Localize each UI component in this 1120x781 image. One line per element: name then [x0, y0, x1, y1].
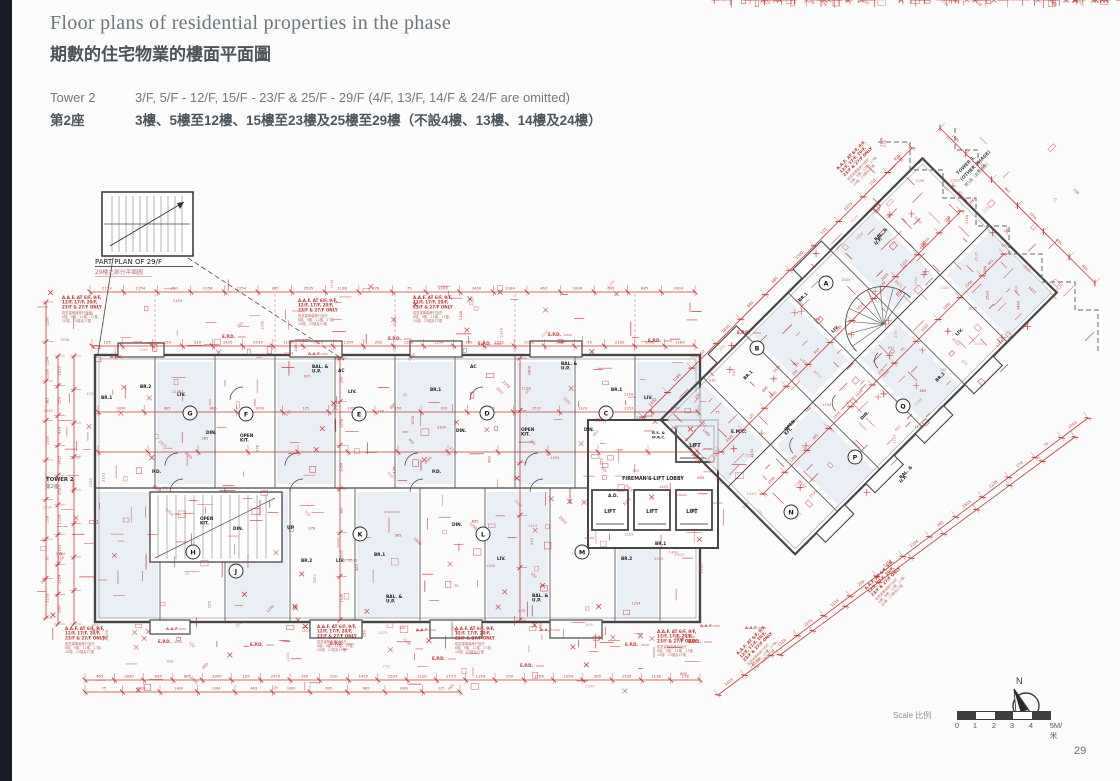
svg-text:75: 75	[715, 411, 720, 415]
svg-text:BR.2: BR.2	[140, 384, 151, 390]
svg-text:AC: AC	[338, 368, 344, 374]
svg-text:150: 150	[363, 629, 367, 637]
svg-text:150: 150	[164, 339, 172, 344]
svg-text:125: 125	[208, 601, 212, 608]
svg-text:278: 278	[46, 516, 50, 522]
svg-text:278: 278	[377, 409, 385, 413]
svg-text:1138: 1138	[988, 479, 999, 489]
svg-text:1425: 1425	[747, 492, 756, 496]
svg-text:AC: AC	[470, 364, 476, 370]
svg-text:695: 695	[785, 0, 792, 1]
svg-text:E.P.D.: E.P.D.	[250, 642, 264, 647]
svg-text:885: 885	[210, 406, 217, 410]
svg-text:125: 125	[103, 339, 111, 344]
svg-text:LIFT: LIFT	[689, 443, 701, 449]
svg-text:1154: 1154	[829, 597, 840, 607]
svg-text:1129: 1129	[521, 386, 531, 390]
svg-text:1254: 1254	[340, 462, 344, 472]
svg-text:695: 695	[586, 623, 593, 627]
svg-text:1830: 1830	[968, 307, 978, 311]
svg-text:A.A.F.: A.A.F.	[745, 625, 758, 630]
svg-text:385: 385	[395, 534, 402, 538]
svg-text:910: 910	[57, 426, 62, 434]
svg-text:278: 278	[308, 527, 316, 531]
svg-text:1129: 1129	[624, 533, 634, 537]
svg-text:2533: 2533	[253, 339, 263, 344]
svg-text:2103: 2103	[1067, 419, 1078, 429]
svg-text:UP: UP	[287, 525, 295, 531]
svg-text:2535: 2535	[494, 339, 504, 344]
svg-text:1258: 1258	[60, 338, 70, 342]
svg-text:125: 125	[438, 686, 444, 690]
svg-text:1400: 1400	[174, 686, 183, 690]
svg-text:1129: 1129	[578, 406, 587, 410]
svg-text:250: 250	[599, 457, 603, 465]
svg-text:695: 695	[155, 673, 163, 678]
svg-text:LIV.: LIV.	[348, 389, 357, 395]
svg-text:23/F & 27/F ONLY: 23/F & 27/F ONLY	[455, 635, 495, 640]
svg-text:BR.1: BR.1	[655, 541, 666, 547]
svg-text:1400: 1400	[472, 285, 482, 290]
scale-bar-graphic	[957, 711, 1051, 720]
svg-text:463: 463	[96, 673, 104, 678]
svg-text:1425: 1425	[358, 673, 368, 678]
svg-text:2535: 2535	[700, 564, 704, 573]
svg-text:463: 463	[487, 456, 491, 463]
scale-bar: Scale 比例 0 1 2 3 4 5M/米	[893, 708, 1068, 732]
svg-text:PART PLAN OF 29/F: PART PLAN OF 29/F	[95, 258, 162, 266]
svg-text:2533: 2533	[388, 673, 398, 678]
svg-text:G: G	[187, 409, 192, 417]
svg-text:1138: 1138	[914, 425, 924, 429]
svg-text:2535: 2535	[622, 673, 632, 678]
svg-text:125: 125	[392, 467, 396, 474]
svg-text:75: 75	[273, 685, 279, 691]
svg-text:1154: 1154	[57, 574, 62, 584]
svg-text:150: 150	[301, 673, 309, 678]
svg-text:2103: 2103	[951, 178, 960, 182]
scale-ticks: 0 1 2 3 4 5M/米	[957, 721, 1057, 731]
svg-text:75: 75	[1042, 441, 1049, 448]
svg-text:1129: 1129	[57, 514, 62, 524]
scale-tick-5: 5M/米	[1050, 721, 1063, 741]
svg-text:2153: 2153	[803, 617, 814, 627]
svg-text:1258: 1258	[404, 339, 414, 344]
svg-text:885: 885	[202, 662, 210, 670]
svg-text:1184: 1184	[675, 339, 685, 344]
svg-text:1254: 1254	[563, 673, 573, 678]
svg-text:250: 250	[375, 339, 383, 344]
svg-text:DIN.: DIN.	[584, 427, 595, 433]
svg-text:885: 885	[363, 686, 369, 690]
svg-text:1258: 1258	[203, 285, 213, 290]
page-number: 29	[1074, 745, 1086, 757]
svg-text:2103: 2103	[101, 473, 105, 482]
scale-tick-0: 0	[955, 721, 959, 730]
svg-text:LIV.: LIV.	[497, 556, 506, 562]
svg-text:H: H	[190, 548, 195, 556]
svg-text:75: 75	[102, 686, 106, 690]
svg-text:1184: 1184	[286, 652, 290, 662]
svg-text:第2座: 第2座	[46, 483, 59, 490]
svg-text:1154: 1154	[136, 285, 146, 290]
svg-text:20樓、23樓及27樓: 20樓、23樓及27樓	[317, 647, 347, 652]
svg-text:2025: 2025	[843, 201, 854, 212]
svg-text:2025: 2025	[57, 365, 62, 375]
svg-text:23/F & 27/F ONLY: 23/F & 27/F ONLY	[317, 633, 357, 638]
svg-text:E.P.D.: E.P.D.	[222, 334, 236, 339]
svg-text:1129: 1129	[283, 339, 293, 344]
svg-text:A.A.F.: A.A.F.	[110, 354, 123, 359]
svg-text:1184: 1184	[505, 285, 515, 290]
svg-text:125: 125	[242, 673, 250, 678]
svg-text:DIN.: DIN.	[452, 522, 463, 528]
svg-text:DIN.: DIN.	[206, 430, 217, 436]
svg-text:E: E	[357, 410, 361, 418]
svg-text:1830: 1830	[287, 686, 296, 690]
svg-text:278: 278	[518, 609, 526, 613]
svg-text:250: 250	[506, 673, 514, 678]
svg-text:1830: 1830	[690, 355, 700, 359]
svg-text:150: 150	[792, 362, 800, 366]
svg-text:910: 910	[194, 339, 202, 344]
svg-text:1154: 1154	[624, 393, 634, 397]
svg-text:A.A.F.: A.A.F.	[416, 627, 429, 632]
svg-text:1258: 1258	[340, 419, 344, 428]
svg-text:2025: 2025	[841, 278, 850, 282]
svg-text:3300: 3300	[212, 673, 222, 678]
svg-text:A.D.: A.D.	[608, 493, 619, 499]
svg-text:1400: 1400	[294, 342, 298, 352]
svg-text:463: 463	[1073, 187, 1081, 195]
svg-text:278: 278	[255, 444, 259, 452]
svg-text:BR.1: BR.1	[430, 387, 441, 393]
svg-text:BR.1: BR.1	[101, 395, 112, 401]
svg-text:1425: 1425	[301, 629, 310, 633]
svg-text:278: 278	[894, 330, 898, 338]
scale-tick-1: 1	[973, 721, 977, 730]
svg-text:385: 385	[340, 507, 344, 514]
svg-text:463: 463	[251, 686, 257, 690]
svg-text:1184: 1184	[212, 686, 221, 690]
svg-text:910: 910	[330, 673, 338, 678]
svg-text:1129: 1129	[500, 327, 504, 337]
svg-text:1138: 1138	[524, 339, 534, 344]
svg-text:2153: 2153	[71, 456, 80, 460]
svg-text:1830: 1830	[124, 673, 134, 678]
svg-text:278: 278	[383, 665, 391, 669]
svg-text:2535: 2535	[43, 505, 52, 509]
svg-text:2535: 2535	[1055, 283, 1064, 292]
svg-text:385: 385	[465, 339, 473, 344]
svg-text:23/F & 27/F ONLY: 23/F & 27/F ONLY	[413, 304, 453, 309]
svg-text:KIT.: KIT.	[200, 520, 209, 526]
svg-text:E.P.D.: E.P.D.	[158, 639, 172, 644]
floor-plan-drawing: PART PLAN OF 29/F29樓之部分平面圖TOWER 1(OTHER …	[0, 0, 1120, 781]
svg-text:2535: 2535	[304, 285, 314, 290]
svg-text:1138: 1138	[45, 368, 49, 378]
svg-text:B: B	[755, 344, 760, 352]
svg-text:1184: 1184	[965, 214, 969, 224]
svg-text:695: 695	[680, 672, 687, 676]
svg-text:910: 910	[530, 537, 534, 545]
svg-text:20樓、23樓及27樓: 20樓、23樓及27樓	[657, 652, 687, 657]
svg-text:150: 150	[188, 641, 196, 649]
svg-text:1258: 1258	[915, 179, 925, 183]
svg-text:1830: 1830	[411, 415, 415, 425]
svg-text:385: 385	[559, 341, 566, 345]
svg-text:278: 278	[883, 140, 887, 148]
svg-text:U.P.: U.P.	[561, 365, 570, 371]
svg-text:2533: 2533	[334, 357, 343, 361]
svg-text:1830: 1830	[947, 215, 951, 225]
svg-text:1154: 1154	[89, 478, 93, 488]
svg-text:1425: 1425	[956, 0, 965, 1]
svg-text:1129: 1129	[139, 348, 149, 352]
scale-tick-2: 2	[992, 721, 996, 730]
svg-text:DIN.: DIN.	[456, 428, 467, 434]
scale-tick-3: 3	[1010, 721, 1014, 730]
svg-text:BR.1: BR.1	[611, 387, 622, 393]
svg-text:A: A	[824, 279, 829, 287]
svg-text:385: 385	[46, 398, 50, 404]
svg-text:LIV.: LIV.	[336, 558, 345, 564]
svg-text:1138: 1138	[459, 310, 463, 320]
svg-text:1154: 1154	[343, 339, 353, 344]
svg-text:385: 385	[594, 673, 602, 678]
svg-text:910: 910	[1014, 285, 1018, 293]
svg-text:385: 385	[919, 389, 926, 393]
svg-text:1154: 1154	[476, 673, 486, 678]
svg-text:1254: 1254	[550, 456, 560, 460]
svg-text:278: 278	[372, 285, 380, 290]
svg-text:250: 250	[236, 321, 244, 329]
svg-text:2153: 2153	[173, 299, 182, 303]
svg-text:U.P.: U.P.	[532, 597, 541, 603]
brochure-page: Floor plans of residential properties in…	[0, 0, 1120, 781]
svg-text:250: 250	[170, 285, 178, 290]
svg-text:1425: 1425	[528, 524, 537, 528]
svg-text:1830: 1830	[486, 564, 496, 568]
svg-text:2535: 2535	[975, 252, 979, 261]
svg-text:385: 385	[271, 285, 279, 290]
scale-label: Scale 比例	[893, 710, 931, 721]
svg-text:1254: 1254	[940, 0, 950, 8]
svg-text:1154: 1154	[330, 279, 334, 289]
svg-text:FIREMAN'S LIFT LOBBY: FIREMAN'S LIFT LOBBY	[622, 476, 684, 482]
svg-text:150: 150	[395, 406, 402, 410]
svg-text:2535: 2535	[961, 499, 972, 509]
svg-text:P.D.: P.D.	[432, 469, 442, 475]
svg-text:LIFT: LIFT	[686, 509, 698, 515]
svg-text:885: 885	[808, 0, 816, 6]
svg-text:BR.1: BR.1	[374, 552, 385, 558]
svg-text:1400: 1400	[527, 365, 531, 375]
svg-text:1830: 1830	[573, 285, 583, 290]
svg-text:1258: 1258	[534, 673, 544, 678]
svg-text:20樓、23樓及27樓: 20樓、23樓及27樓	[65, 649, 95, 654]
svg-text:1258: 1258	[46, 317, 50, 326]
svg-text:1830: 1830	[1028, 211, 1037, 220]
svg-text:J: J	[234, 567, 237, 575]
part-plan: PART PLAN OF 29/F29樓之部分平面圖	[95, 192, 344, 360]
svg-text:E.M.C.: E.M.C.	[731, 429, 747, 435]
svg-text:3300: 3300	[585, 684, 595, 688]
svg-text:20樓、23樓及27樓: 20樓、23樓及27樓	[62, 318, 92, 323]
svg-text:125: 125	[982, 206, 990, 214]
svg-text:125: 125	[844, 0, 852, 6]
svg-text:2153: 2153	[446, 673, 456, 678]
svg-text:2103: 2103	[378, 631, 387, 635]
svg-text:1425: 1425	[57, 455, 62, 465]
svg-text:1425: 1425	[659, 485, 668, 489]
svg-text:910: 910	[709, 379, 717, 383]
svg-text:3300: 3300	[437, 426, 447, 430]
svg-text:E.P.D.: E.P.D.	[648, 338, 662, 343]
svg-text:23/F & 27/F ONLY: 23/F & 27/F ONLY	[65, 635, 105, 640]
svg-text:M: M	[579, 548, 585, 556]
svg-text:75: 75	[407, 285, 412, 290]
svg-text:1154: 1154	[670, 406, 680, 410]
svg-text:BR.2: BR.2	[301, 558, 312, 564]
svg-text:150: 150	[57, 396, 62, 404]
svg-text:2153: 2153	[914, 277, 918, 286]
svg-text:3300: 3300	[673, 285, 683, 290]
svg-text:885: 885	[641, 285, 649, 290]
svg-text:1400: 1400	[940, 286, 950, 290]
svg-text:910: 910	[441, 406, 448, 410]
svg-text:1830: 1830	[117, 406, 126, 410]
svg-text:E.P.D.: E.P.D.	[478, 341, 492, 346]
svg-text:29樓之部分平面圖: 29樓之部分平面圖	[95, 268, 143, 276]
svg-text:E.P.D.: E.P.D.	[388, 336, 402, 341]
svg-text:2153: 2153	[624, 406, 633, 410]
svg-text:DIN.: DIN.	[233, 526, 244, 532]
svg-text:2153: 2153	[102, 285, 112, 290]
svg-text:910: 910	[732, 369, 736, 377]
svg-text:2535: 2535	[46, 436, 50, 445]
svg-text:1184: 1184	[983, 265, 987, 275]
svg-text:1254: 1254	[631, 601, 641, 605]
svg-text:20樓、23樓及27樓: 20樓、23樓及27樓	[298, 321, 328, 326]
svg-text:695: 695	[326, 686, 332, 690]
svg-text:1254: 1254	[46, 357, 50, 366]
svg-text:250: 250	[57, 605, 62, 613]
svg-text:125: 125	[302, 406, 309, 410]
svg-text:2535: 2535	[340, 550, 344, 559]
svg-text:385: 385	[1019, 0, 1026, 1]
svg-text:75: 75	[46, 557, 50, 561]
svg-text:E.P.D.: E.P.D.	[432, 656, 446, 661]
svg-text:2025: 2025	[654, 557, 663, 561]
svg-text:C: C	[604, 409, 609, 417]
svg-text:3300: 3300	[399, 686, 408, 690]
svg-text:23/F & 27/F ONLY: 23/F & 27/F ONLY	[298, 307, 338, 312]
svg-text:1154: 1154	[822, 403, 832, 407]
svg-text:695: 695	[888, 346, 895, 350]
svg-text:2103: 2103	[615, 339, 625, 344]
svg-text:Q: Q	[900, 402, 906, 410]
svg-text:P: P	[853, 453, 858, 461]
svg-text:N: N	[788, 508, 793, 516]
svg-text:1258: 1258	[261, 320, 265, 330]
svg-text:1154: 1154	[974, 342, 984, 346]
svg-text:R.S. &: R.S. &	[652, 431, 666, 435]
svg-text:23/F & 27/F ONLY: 23/F & 27/F ONLY	[657, 638, 697, 643]
svg-text:2153: 2153	[313, 339, 323, 344]
svg-text:E.P.D.: E.P.D.	[737, 330, 751, 335]
svg-text:1830: 1830	[189, 676, 199, 686]
svg-text:695: 695	[697, 476, 704, 480]
svg-text:A.A.F.: A.A.F.	[166, 626, 179, 631]
svg-text:463: 463	[447, 683, 455, 691]
svg-text:2025: 2025	[132, 339, 142, 344]
svg-text:23/F & 27/F ONLY: 23/F & 27/F ONLY	[62, 304, 102, 309]
svg-text:1425: 1425	[723, 677, 734, 687]
svg-text:U.P.: U.P.	[312, 368, 321, 374]
svg-text:463: 463	[355, 564, 359, 571]
svg-text:BR.2: BR.2	[621, 556, 632, 562]
svg-text:1254: 1254	[284, 351, 294, 355]
svg-text:LIFT: LIFT	[646, 509, 658, 515]
svg-text:1254: 1254	[434, 339, 444, 344]
svg-text:D: D	[484, 409, 489, 417]
svg-text:3300: 3300	[255, 406, 264, 410]
svg-text:75: 75	[185, 572, 190, 576]
svg-text:L: L	[481, 530, 485, 538]
svg-text:LIV.: LIV.	[177, 392, 186, 398]
svg-text:695: 695	[304, 374, 311, 378]
svg-text:1129: 1129	[86, 392, 96, 396]
svg-text:TOWER 2: TOWER 2	[46, 477, 74, 483]
svg-text:LIFT: LIFT	[604, 509, 616, 515]
scale-tick-4: 4	[1029, 721, 1033, 730]
svg-text:1400: 1400	[1016, 300, 1020, 310]
svg-text:A.A.F.: A.A.F.	[540, 627, 553, 632]
svg-text:1138: 1138	[651, 673, 661, 678]
svg-text:U.P.: U.P.	[386, 598, 395, 604]
svg-text:20樓、23樓及27樓: 20樓、23樓及27樓	[455, 649, 485, 654]
svg-text:1138: 1138	[337, 285, 347, 290]
svg-text:2103: 2103	[46, 594, 50, 603]
svg-text:75: 75	[454, 584, 459, 588]
svg-text:250: 250	[340, 376, 344, 383]
svg-text:KIT.: KIT.	[521, 431, 530, 437]
svg-text:1138: 1138	[340, 594, 344, 603]
svg-text:1154: 1154	[750, 448, 754, 458]
svg-text:385: 385	[201, 436, 208, 440]
svg-text:M.R.C.: M.R.C.	[652, 436, 666, 440]
svg-text:75: 75	[587, 339, 592, 344]
svg-text:885: 885	[956, 191, 963, 195]
svg-text:885: 885	[1001, 244, 1008, 248]
svg-text:1254: 1254	[236, 285, 246, 290]
svg-text:2535: 2535	[636, 416, 645, 420]
svg-text:2533: 2533	[348, 559, 357, 563]
svg-text:2025: 2025	[271, 673, 281, 678]
svg-text:E.P.D.: E.P.D.	[520, 663, 534, 668]
svg-text:A.A.F.: A.A.F.	[308, 351, 321, 356]
svg-text:695: 695	[164, 406, 171, 410]
svg-text:2533: 2533	[986, 291, 990, 300]
svg-text:KIT.: KIT.	[240, 437, 249, 443]
svg-text:P.D.: P.D.	[152, 469, 162, 475]
svg-text:910: 910	[633, 469, 641, 473]
svg-text:3300: 3300	[313, 574, 317, 584]
svg-text:75: 75	[1053, 198, 1057, 203]
svg-text:910: 910	[167, 660, 175, 664]
svg-text:1138: 1138	[973, 0, 983, 8]
